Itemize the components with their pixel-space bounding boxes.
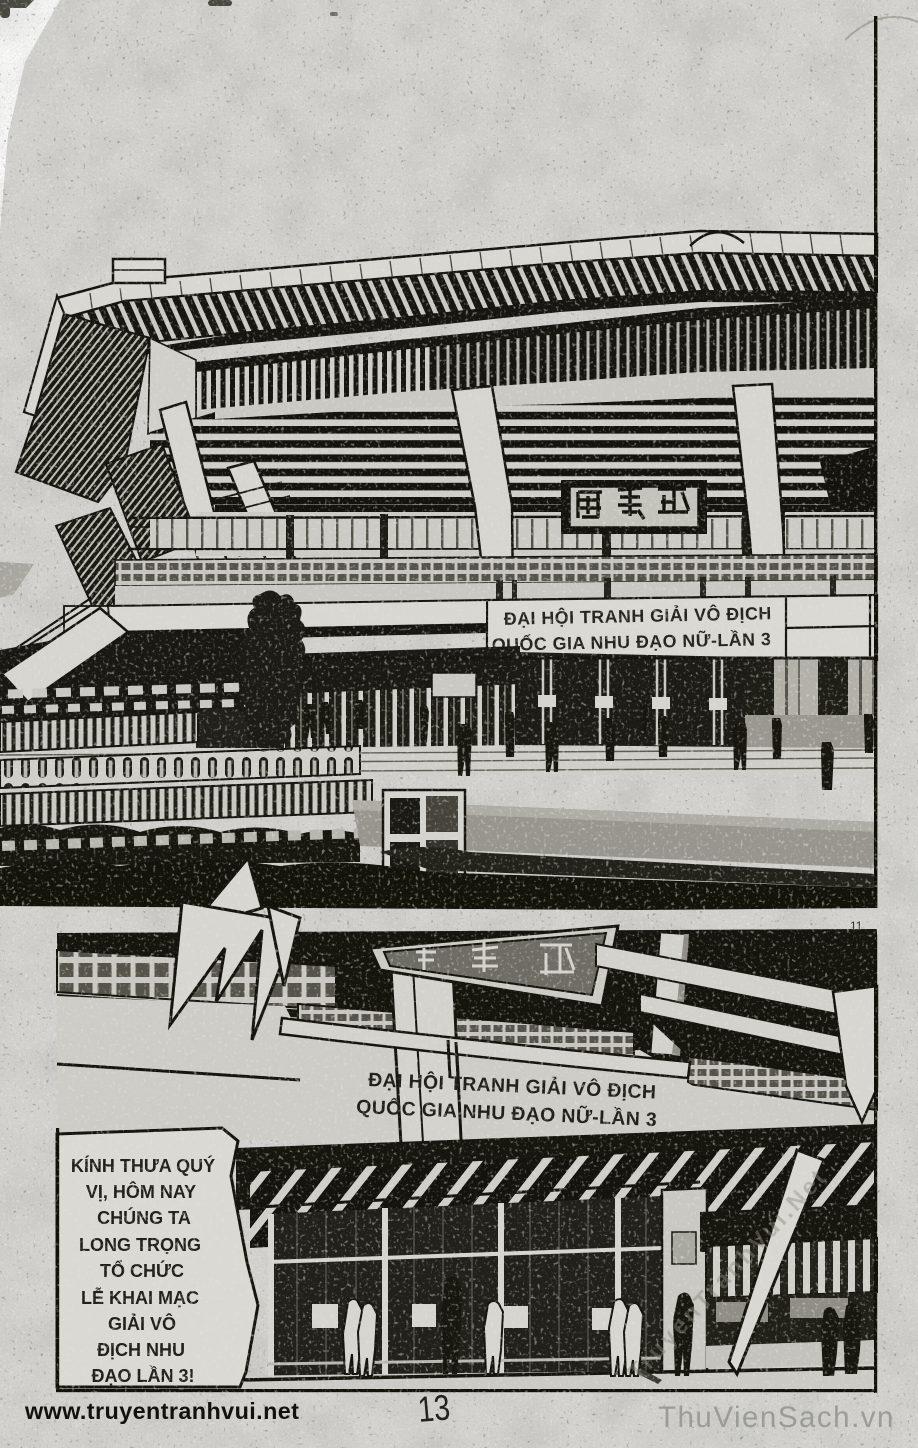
svg-text:www.truyentranhvui.net: www.truyentranhvui.net [24, 1398, 299, 1424]
svg-text:ThuVienSach.vn: ThuVienSach.vn [658, 1401, 895, 1434]
svg-text:13: 13 [416, 1386, 451, 1429]
